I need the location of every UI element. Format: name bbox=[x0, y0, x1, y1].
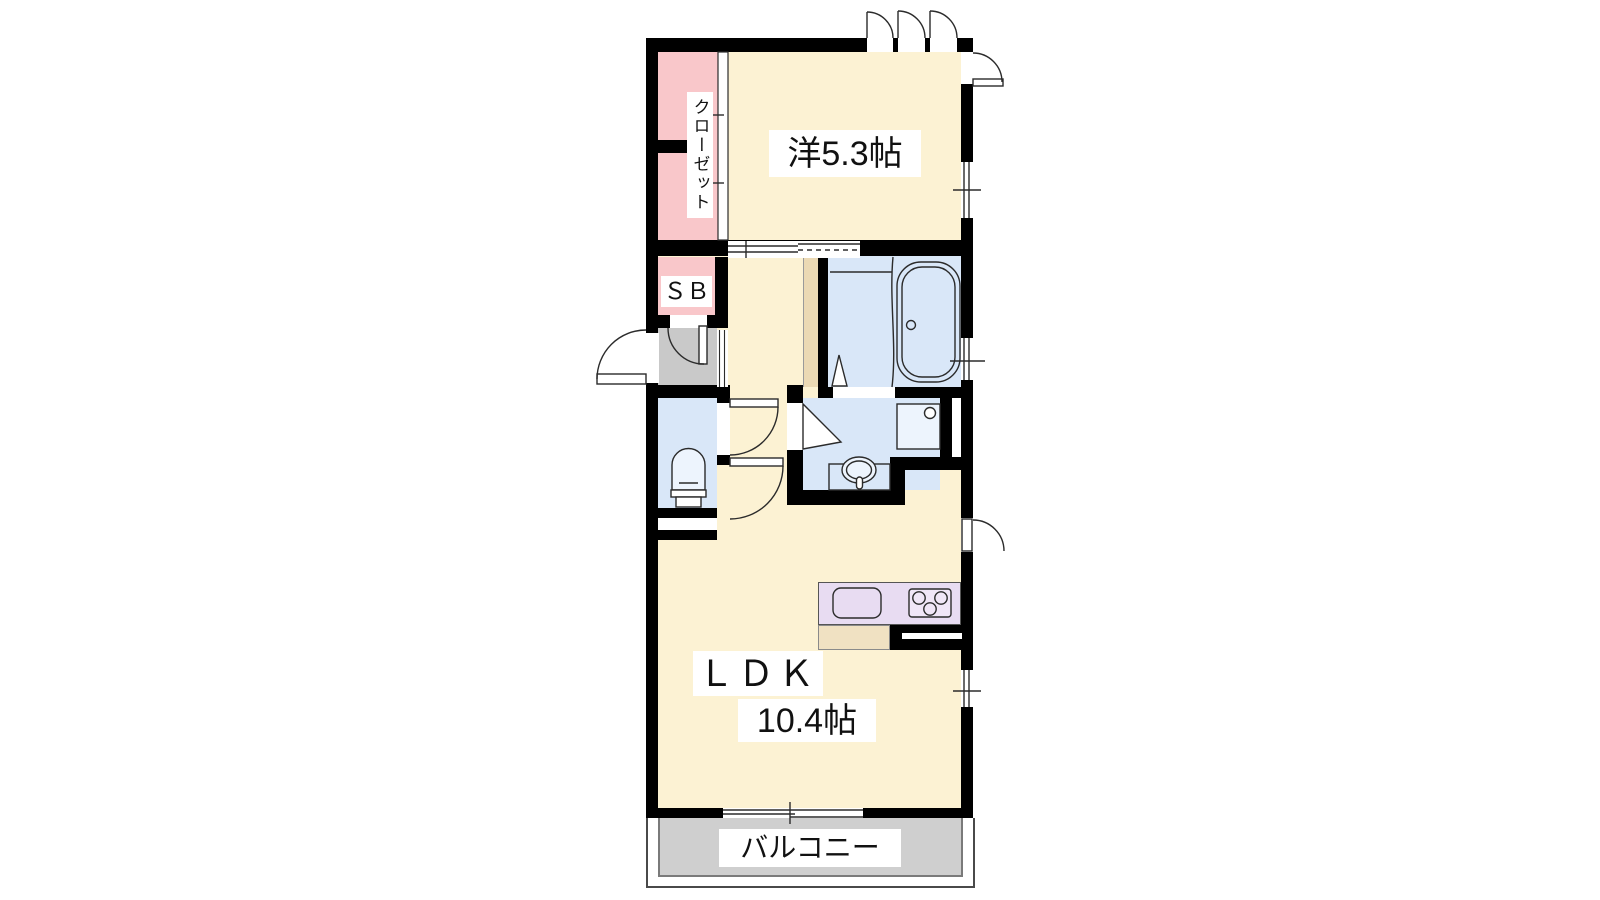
wall-shoebox-bottom-b bbox=[707, 315, 728, 328]
casement-window-icons bbox=[867, 11, 957, 38]
toilet-door-opening bbox=[717, 403, 730, 455]
room-toilet bbox=[658, 398, 717, 508]
casement-window-gap-2 bbox=[898, 38, 925, 52]
casement-window-gap-1 bbox=[867, 38, 893, 52]
western-room-label: 洋5.3帖 bbox=[769, 130, 921, 177]
bedroom-right-door-swing bbox=[973, 53, 1003, 86]
shoebox-opening bbox=[670, 315, 707, 328]
ldk-right-door-opening bbox=[961, 518, 973, 552]
bathroom-door-opening bbox=[833, 387, 895, 398]
ldk-area-label: 10.4帖 bbox=[738, 699, 876, 742]
wall-toilet-bottom bbox=[658, 508, 717, 518]
bedroom-right-door-opening bbox=[961, 52, 973, 84]
balcony-sliding-window bbox=[723, 808, 863, 818]
wall-washroom-bottom bbox=[787, 490, 905, 505]
kitchen-floor-strip bbox=[818, 625, 890, 650]
wall-bathroom-left bbox=[818, 250, 828, 398]
wall-shoebox-bottom-a bbox=[658, 315, 670, 328]
bathroom-window bbox=[961, 338, 973, 380]
below-toilet-gap bbox=[658, 518, 717, 530]
room-washroom bbox=[803, 398, 940, 490]
wall-washroom-right bbox=[940, 398, 952, 457]
room-genkan-entry bbox=[658, 328, 717, 385]
wall-below-toilet bbox=[646, 530, 717, 540]
front-door-swing bbox=[597, 330, 646, 384]
ldk-right-window bbox=[961, 670, 973, 707]
kitchen-wall-counter-slot bbox=[902, 633, 962, 639]
pipe-space-gap bbox=[952, 398, 961, 457]
casement-window-gap-3 bbox=[930, 38, 957, 52]
bedroom-right-window bbox=[961, 162, 973, 218]
hall-flooring-strip bbox=[803, 256, 818, 387]
wall-left bbox=[646, 52, 658, 818]
washroom-door-opening bbox=[787, 403, 803, 450]
kitchen-counter bbox=[818, 582, 961, 625]
genkan-step-strip bbox=[717, 330, 728, 387]
wall-closet-stub bbox=[646, 140, 690, 153]
closet-label: クローゼット bbox=[687, 92, 713, 218]
front-door-opening bbox=[644, 333, 659, 383]
balcony-label: バルコニー bbox=[719, 829, 901, 867]
ldk-label: ＬＤＫ bbox=[693, 651, 823, 696]
bedroom-dashed-opening bbox=[798, 241, 860, 258]
floor-plan: クローゼット ＳＢ 洋5.3帖 ＬＤＫ 10.4帖 バルコニー bbox=[0, 0, 1600, 900]
room-bathroom bbox=[828, 256, 961, 387]
bedroom-sliding-door-opening bbox=[728, 241, 798, 258]
shoebox-label: ＳＢ bbox=[661, 276, 712, 307]
